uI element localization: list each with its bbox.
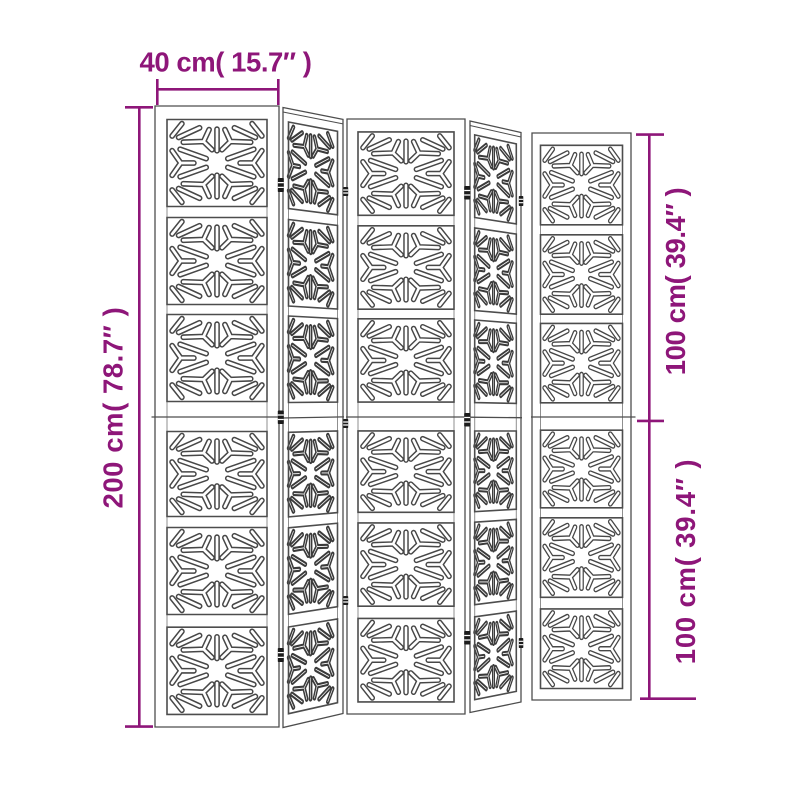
svg-text:40 cm( 15.7″ ): 40 cm( 15.7″ ) bbox=[140, 46, 312, 77]
svg-text:100 cm( 39.4″ ): 100 cm( 39.4″ ) bbox=[670, 459, 701, 665]
svg-text:200 cm( 78.7″ ): 200 cm( 78.7″ ) bbox=[98, 307, 129, 509]
svg-text:100 cm( 39.4″ ): 100 cm( 39.4″ ) bbox=[660, 188, 691, 376]
